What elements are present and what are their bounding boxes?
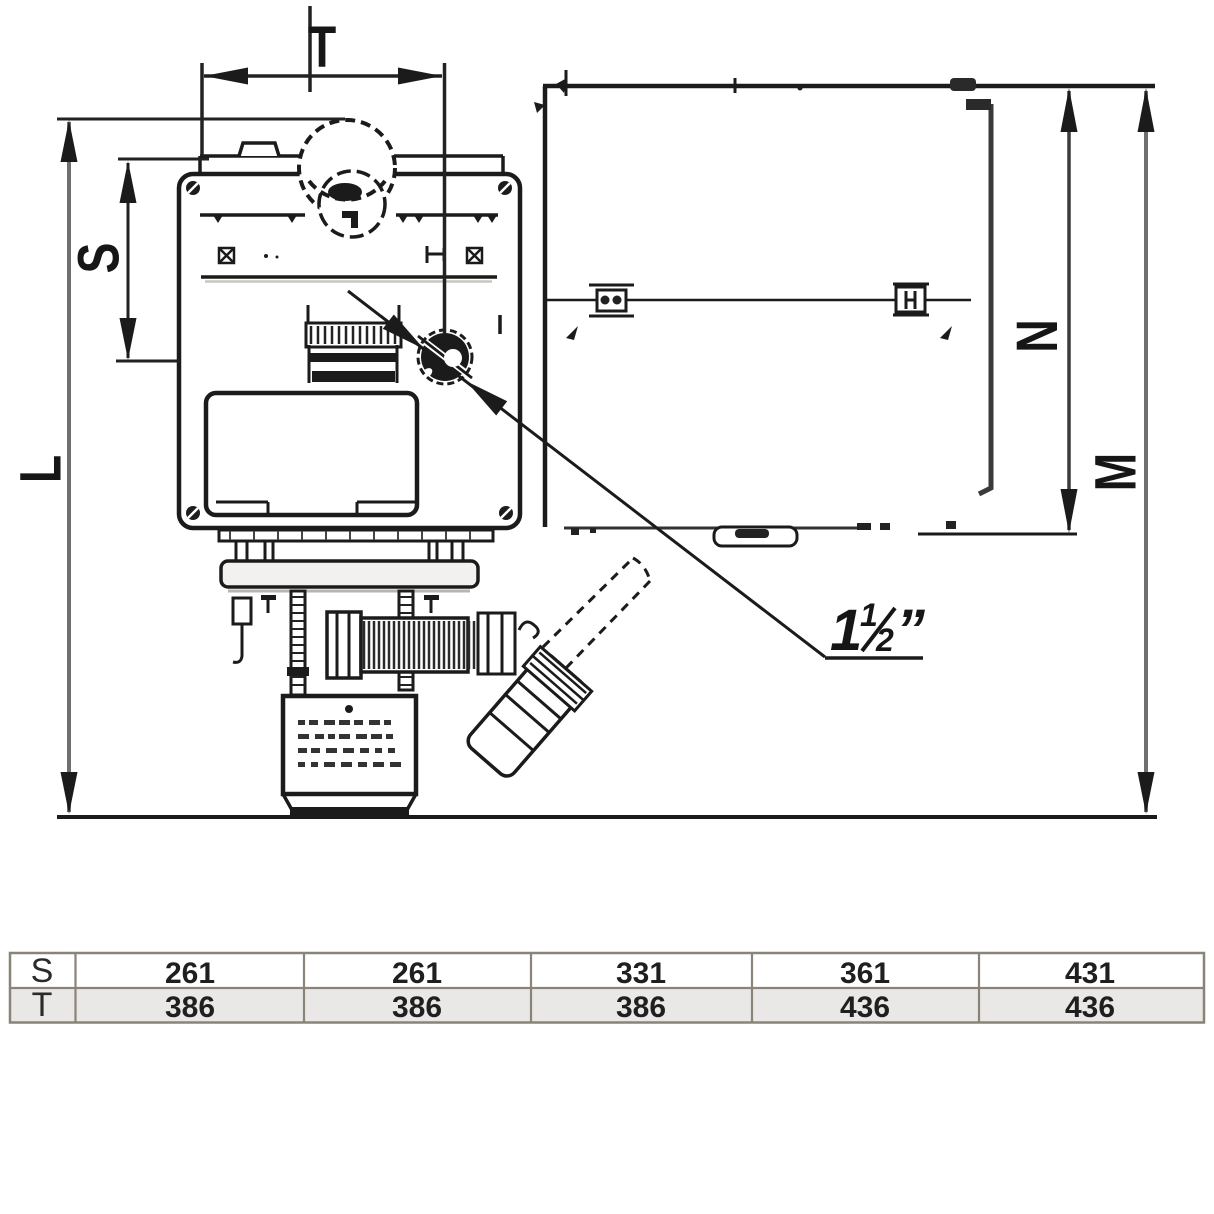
svg-text:436: 436 [840, 991, 890, 1024]
svg-text:386: 386 [165, 991, 215, 1024]
svg-text:261: 261 [165, 957, 215, 990]
svg-text:331: 331 [616, 957, 666, 990]
svg-text:431: 431 [1065, 957, 1115, 990]
svg-text:361: 361 [840, 957, 890, 990]
svg-text:M: M [1084, 453, 1149, 492]
svg-text:436: 436 [1065, 991, 1115, 1024]
svg-text:386: 386 [616, 991, 666, 1024]
svg-text:386: 386 [392, 991, 442, 1024]
svg-text:S: S [31, 952, 54, 990]
svg-text:”: ” [896, 598, 925, 663]
svg-text:261: 261 [392, 957, 442, 990]
svg-text:L: L [9, 455, 74, 483]
svg-text:S: S [67, 243, 132, 274]
svg-text:1: 1 [830, 598, 862, 663]
svg-text:2: 2 [875, 622, 894, 658]
svg-text:N: N [1005, 319, 1070, 353]
svg-text:T: T [32, 986, 53, 1024]
svg-text:T: T [308, 15, 336, 80]
